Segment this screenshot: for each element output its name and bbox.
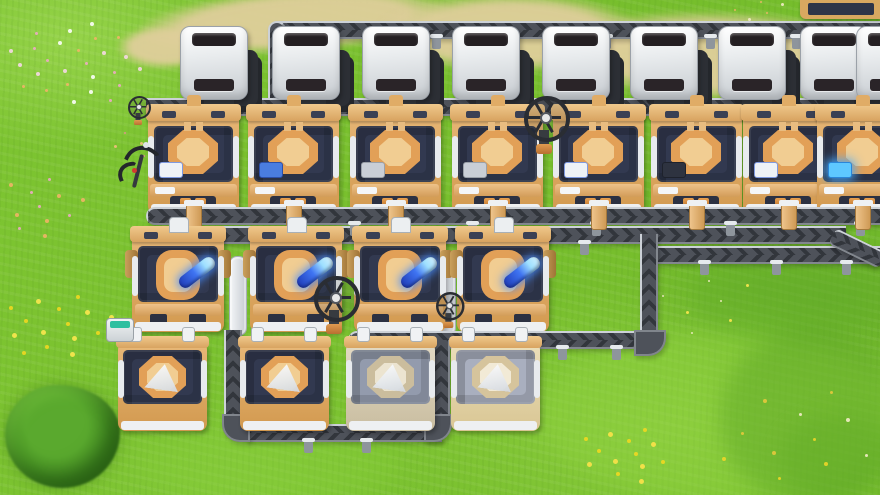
input-manifold: [246, 104, 341, 121]
vent-slot: [284, 33, 328, 46]
belt-support-foot: [558, 348, 567, 360]
flower-speck: [9, 183, 13, 187]
flower-speck: [57, 307, 61, 311]
vent-slot: [466, 79, 506, 91]
vent-slot: [644, 79, 684, 91]
pole-hub: [540, 112, 552, 124]
refinery-machine-blue-rod[interactable]: [352, 226, 448, 334]
flower-speck: [66, 322, 70, 326]
machine-housing: [272, 26, 340, 100]
flower-speck: [734, 9, 736, 11]
machine-housing: [542, 26, 610, 100]
vent-slot: [376, 79, 416, 91]
side-trim: [451, 360, 457, 398]
machine-output-stub: [591, 204, 607, 230]
flower-speck: [766, 12, 768, 14]
machine-housing: [856, 26, 880, 100]
flower-speck: [36, 299, 41, 304]
manifold-slot: [162, 111, 176, 118]
power-pole[interactable]: [314, 276, 354, 336]
frame-tab: [488, 122, 495, 131]
fabricator-machine-prism[interactable]: [449, 336, 542, 433]
input-manifold: [815, 104, 880, 121]
input-port: [690, 95, 704, 106]
fabricator-machine-prism[interactable]: [238, 336, 331, 433]
input-port: [357, 327, 370, 342]
bush: [5, 385, 120, 488]
flower-speck: [608, 432, 613, 437]
manifold-slot: [198, 232, 212, 239]
pole-hub: [136, 104, 142, 110]
frame-tab: [500, 122, 507, 131]
side-trim: [346, 360, 352, 398]
manifold-slot: [366, 232, 380, 239]
white-slot: [459, 187, 479, 194]
belt-support-foot: [700, 263, 709, 275]
vent-slot: [192, 33, 236, 46]
input-port: [391, 217, 411, 233]
flower-speck: [813, 438, 816, 441]
flower-speck: [118, 84, 121, 87]
vent-slot: [642, 33, 686, 46]
flower-speck: [81, 198, 85, 202]
vent-slot: [194, 79, 234, 91]
frame-tab: [699, 122, 706, 131]
flower-speck: [616, 472, 620, 476]
belt-support-foot: [580, 243, 589, 255]
flower-speck: [57, 194, 61, 198]
frame-tab: [601, 122, 608, 131]
side-trim: [638, 136, 644, 178]
flower-speck: [38, 205, 41, 208]
flower-speck: [102, 51, 106, 55]
manifold-slot: [831, 111, 845, 118]
manifold-slot: [311, 111, 325, 118]
vent-slot: [812, 33, 856, 46]
player-character[interactable]: [116, 140, 160, 200]
side-trim: [435, 136, 441, 178]
manifold-slot: [420, 232, 434, 239]
input-port: [169, 217, 189, 233]
flower-speck: [778, 477, 781, 480]
manifold-slot: [144, 232, 158, 239]
frame-tab: [386, 122, 393, 131]
vent-slot: [554, 33, 598, 46]
side-trim: [132, 256, 138, 296]
pole-foundation: [134, 120, 142, 125]
flower-speck: [46, 59, 49, 62]
vent-slot: [814, 79, 854, 91]
input-port: [592, 95, 606, 106]
input-port: [494, 217, 514, 233]
game-viewport: [0, 0, 880, 495]
manifold-slot: [714, 111, 728, 118]
machine-housing: [718, 26, 786, 100]
vent-slot: [730, 33, 774, 46]
flower-speck: [33, 47, 36, 50]
flower-speck: [799, 413, 802, 416]
input-port: [515, 327, 528, 342]
manifold-slot: [316, 232, 330, 239]
side-trim: [350, 136, 356, 178]
white-slot: [560, 187, 580, 194]
pole-foundation: [326, 324, 342, 334]
flower-speck: [77, 49, 80, 52]
base-band: [454, 421, 537, 430]
vent-slot: [464, 33, 508, 46]
vent-slot: [868, 33, 880, 46]
accent-module: [754, 162, 778, 178]
frame-tab: [687, 122, 694, 131]
flower-speck: [18, 227, 21, 230]
flower-speck: [18, 63, 22, 67]
flower-speck: [741, 432, 744, 435]
machine-housing: [180, 26, 248, 100]
frame-tab: [589, 122, 596, 131]
side-trim: [250, 256, 256, 296]
frame-tab: [296, 122, 303, 131]
side-trim: [240, 360, 246, 398]
flower-speck: [45, 345, 49, 349]
flower-speck: [30, 191, 33, 194]
flower-speck: [70, 352, 75, 357]
flower-speck: [91, 75, 95, 79]
flower-speck: [640, 464, 645, 469]
character-part: [143, 142, 149, 148]
flower-speck: [48, 178, 51, 181]
flower-speck: [763, 399, 767, 403]
machine-output-stub: [855, 204, 871, 230]
white-slot: [255, 187, 275, 194]
side-trim: [333, 136, 339, 178]
side-trim: [323, 360, 329, 398]
flower-speck: [41, 330, 46, 335]
lower-bar: [460, 304, 546, 316]
flower-speck: [96, 331, 100, 335]
input-port: [287, 95, 301, 106]
flower-speck: [662, 295, 664, 297]
flower-speck: [15, 213, 19, 217]
fabricator-machine-prism[interactable]: [116, 336, 209, 433]
frame-tab: [779, 122, 786, 131]
frame-tab: [184, 122, 191, 131]
machine-housing: [452, 26, 520, 100]
side-trim: [457, 256, 463, 296]
base-band: [135, 322, 221, 331]
belt-support-foot: [726, 224, 735, 236]
lower-bar: [135, 304, 221, 316]
machine-housing: [630, 26, 698, 100]
flower-speck: [94, 37, 97, 40]
flower-speck: [76, 295, 80, 299]
flower-speck: [24, 319, 28, 323]
flower-speck: [117, 36, 120, 39]
input-port: [251, 327, 264, 342]
vent-slot: [286, 79, 326, 91]
flower-speck: [36, 72, 40, 76]
flower-speck: [138, 67, 142, 71]
vent-slot: [556, 79, 596, 91]
flower-speck: [708, 280, 710, 282]
fabricator-machine-prism[interactable]: [344, 336, 437, 433]
assembler-machine[interactable]: [348, 102, 443, 216]
belt-support-foot: [842, 263, 851, 275]
machine-housing: [362, 26, 430, 100]
belt-support-foot: [612, 348, 621, 360]
frame-tab: [284, 122, 291, 131]
flower-speck: [846, 418, 850, 422]
input-manifold: [348, 104, 443, 121]
pole-hub: [446, 302, 453, 309]
flower-speck: [651, 442, 656, 447]
white-slot: [658, 187, 678, 194]
flower-speck: [68, 214, 71, 217]
manifold-slot: [262, 232, 276, 239]
flower-speck: [72, 100, 76, 104]
input-port: [491, 95, 505, 106]
input-port: [182, 327, 195, 342]
assembler-machine[interactable]: [246, 102, 341, 216]
character-part: [132, 168, 137, 173]
white-slot: [824, 187, 844, 194]
conveyor-belt-segment[interactable]: [640, 234, 658, 336]
flower-speck: [35, 32, 38, 35]
partial-machine-edge[interactable]: [800, 0, 880, 19]
flower-speck: [68, 29, 72, 33]
assembler-machine[interactable]: [649, 102, 744, 216]
assembler-machine[interactable]: [815, 102, 880, 216]
flower-speck: [597, 449, 601, 453]
accent-module: [259, 162, 283, 178]
vent-slot: [374, 33, 418, 46]
flower-speck: [9, 49, 13, 53]
pole-hub: [330, 292, 342, 304]
side-trim: [651, 136, 657, 178]
flower-speck: [113, 71, 116, 74]
flower-speck: [85, 310, 90, 315]
flower-speck: [661, 460, 665, 464]
white-slot: [750, 187, 770, 194]
accent-module: [662, 162, 686, 178]
machine-deck: [808, 3, 874, 15]
side-trim: [452, 136, 458, 178]
manifold-slot: [469, 232, 483, 239]
input-manifold: [146, 104, 241, 121]
flower-speck: [22, 351, 26, 355]
frame-tab: [853, 122, 860, 131]
machine-output-stub: [781, 204, 797, 230]
power-pole[interactable]: [128, 96, 148, 126]
flower-speck: [772, 451, 776, 455]
flower-speck: [109, 99, 112, 102]
flower-speck: [124, 55, 128, 59]
frame-tab: [865, 122, 872, 131]
belt-support-foot: [362, 441, 371, 453]
input-port: [287, 217, 307, 233]
vent-slot: [870, 79, 880, 91]
flower-speck: [830, 391, 833, 394]
pole-foundation: [536, 144, 552, 154]
input-port: [462, 327, 475, 342]
manifold-slot: [413, 111, 427, 118]
base-band: [243, 421, 326, 430]
input-port: [856, 95, 870, 106]
manifold-slot: [466, 111, 480, 118]
flower-speck: [729, 319, 732, 322]
side-trim: [248, 136, 254, 178]
frame-tab: [398, 122, 405, 131]
flower-speck: [746, 284, 749, 287]
flower-speck: [639, 479, 644, 484]
flower-speck: [22, 85, 25, 88]
side-trim: [440, 256, 446, 296]
input-port: [782, 95, 796, 106]
white-slot: [357, 187, 377, 194]
manifold-slot: [616, 111, 630, 118]
side-trim: [118, 360, 124, 398]
manifold-slot: [757, 111, 771, 118]
vent-slot: [732, 79, 772, 91]
input-port: [187, 95, 201, 106]
flower-speck: [9, 306, 13, 310]
input-port: [389, 95, 403, 106]
manifold-slot: [211, 111, 225, 118]
power-pole[interactable]: [524, 96, 564, 156]
flower-speck: [613, 459, 618, 464]
flower-speck: [686, 311, 689, 314]
side-trim: [543, 256, 549, 296]
power-pole[interactable]: [436, 292, 461, 329]
accent-module: [361, 162, 385, 178]
frame-tab: [791, 122, 798, 131]
flower-speck: [634, 452, 638, 456]
lower-bar: [357, 304, 443, 316]
flower-speck: [90, 22, 94, 26]
accent-module: [564, 162, 588, 178]
flower-speck: [124, 132, 126, 134]
manifold-slot: [262, 111, 276, 118]
flower-speck: [66, 83, 69, 86]
small-storage-box[interactable]: [106, 318, 134, 342]
base-band: [349, 421, 432, 430]
side-trim: [817, 136, 823, 178]
side-trim: [201, 360, 207, 398]
accent-module: [463, 162, 487, 178]
input-manifold: [649, 104, 744, 121]
side-trim: [534, 360, 540, 398]
side-trim: [233, 136, 239, 178]
belt-support-foot: [772, 263, 781, 275]
side-trim: [218, 256, 224, 296]
refinery-machine-blue-rod[interactable]: [455, 226, 551, 334]
input-port: [410, 327, 423, 342]
flower-speck: [63, 69, 67, 73]
flower-speck: [72, 336, 77, 341]
flower-speck: [45, 219, 49, 223]
flower-speck: [722, 457, 726, 461]
flower-speck: [643, 428, 647, 432]
manifold-slot: [523, 232, 537, 239]
flower-speck: [85, 62, 88, 65]
side-trim: [429, 360, 435, 398]
flower-speck: [865, 454, 868, 457]
flower-speck: [43, 234, 47, 238]
flower-speck: [720, 300, 722, 302]
machine-output-stub: [689, 204, 705, 230]
side-trim: [743, 136, 749, 178]
belt-support-foot: [304, 441, 313, 453]
pole-foundation: [443, 322, 453, 328]
flower-speck: [691, 332, 693, 334]
accent-module: [828, 162, 852, 178]
flower-speck: [760, 1, 762, 3]
flower-speck: [627, 439, 631, 443]
refinery-machine-blue-rod[interactable]: [130, 226, 226, 334]
flower-speck: [58, 41, 62, 45]
flower-speck: [781, 3, 784, 6]
grass-shade-patch: [690, 252, 880, 340]
flower-speck: [89, 90, 93, 94]
flower-speck: [584, 437, 588, 441]
manifold-slot: [665, 111, 679, 118]
flower-speck: [824, 462, 828, 466]
flower-speck: [12, 333, 17, 338]
flower-speck: [587, 462, 592, 467]
manifold-slot: [364, 111, 378, 118]
flower-speck: [45, 89, 48, 92]
frame-tab: [196, 122, 203, 131]
base-band: [121, 421, 204, 430]
